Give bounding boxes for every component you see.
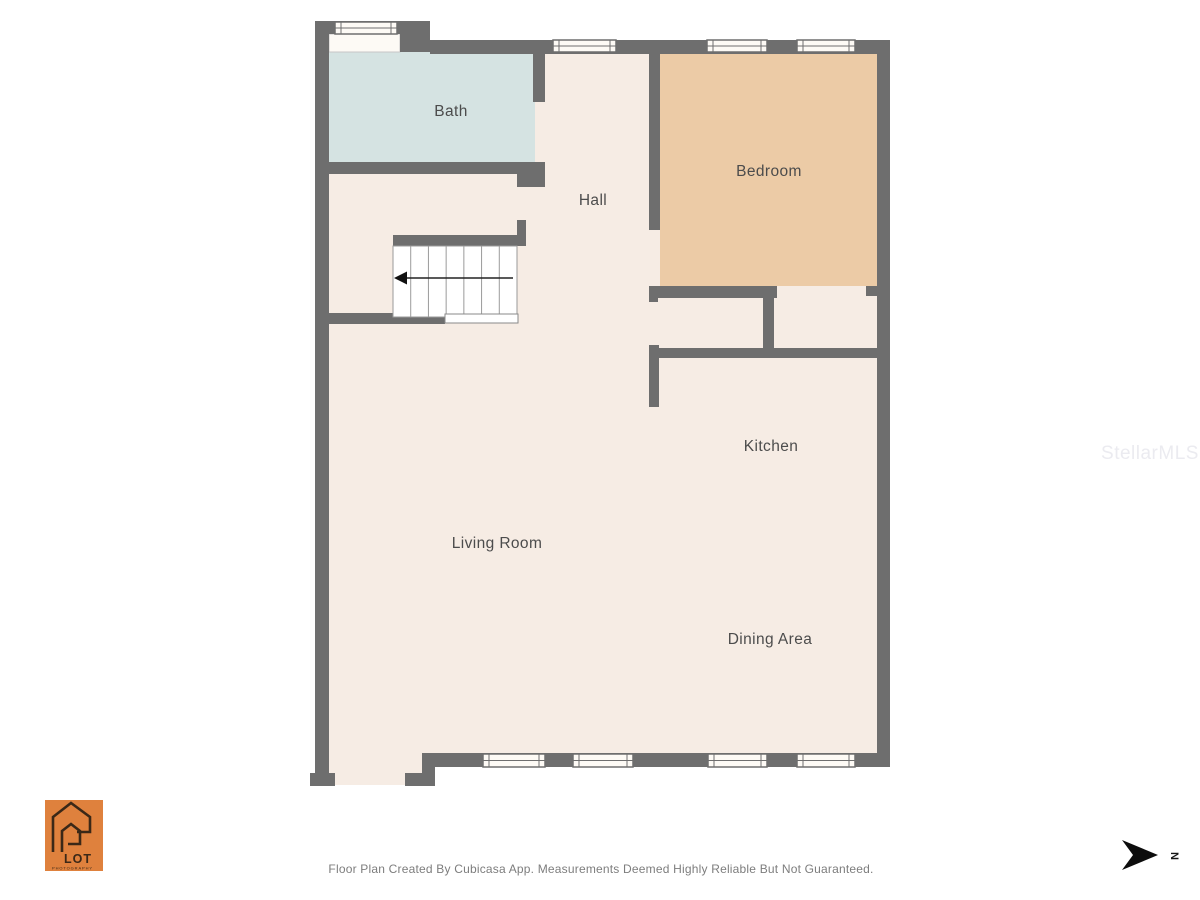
room-label-living-room: Living Room <box>452 535 543 552</box>
room-label-dining-area: Dining Area <box>728 631 813 648</box>
bath-window-recess <box>329 34 400 52</box>
plot-photography-logo: LOT PHOTOGRAPHY <box>45 800 103 871</box>
window-symbol <box>483 754 545 767</box>
floor-base <box>329 34 877 785</box>
window-symbol <box>553 40 616 52</box>
room-label-bedroom: Bedroom <box>736 163 802 180</box>
window-symbol <box>335 22 397 34</box>
floor-plan: Bath Hall Bedroom Kitchen Living Room Di… <box>0 0 1200 900</box>
room-bath-floor <box>329 52 535 162</box>
window-symbol <box>708 754 767 767</box>
staircase <box>393 246 518 323</box>
window-symbol <box>797 40 855 52</box>
room-label-bath: Bath <box>434 103 468 120</box>
stair-treads-area <box>393 246 517 317</box>
logo-photography-text: PHOTOGRAPHY <box>52 866 93 871</box>
room-label-kitchen: Kitchen <box>744 438 799 455</box>
window-symbol <box>573 754 633 767</box>
north-arrow-icon <box>1122 840 1158 870</box>
disclaimer-text: Floor Plan Created By Cubicasa App. Meas… <box>328 862 873 876</box>
north-compass: N <box>1122 840 1180 870</box>
window-symbol <box>797 754 855 767</box>
stellar-mls-watermark: StellarMLS <box>1101 443 1199 464</box>
room-label-hall: Hall <box>579 192 607 209</box>
logo-lot-text: LOT <box>64 852 92 866</box>
window-symbol <box>707 40 767 52</box>
north-label: N <box>1168 852 1180 860</box>
stair-landing <box>445 314 518 323</box>
